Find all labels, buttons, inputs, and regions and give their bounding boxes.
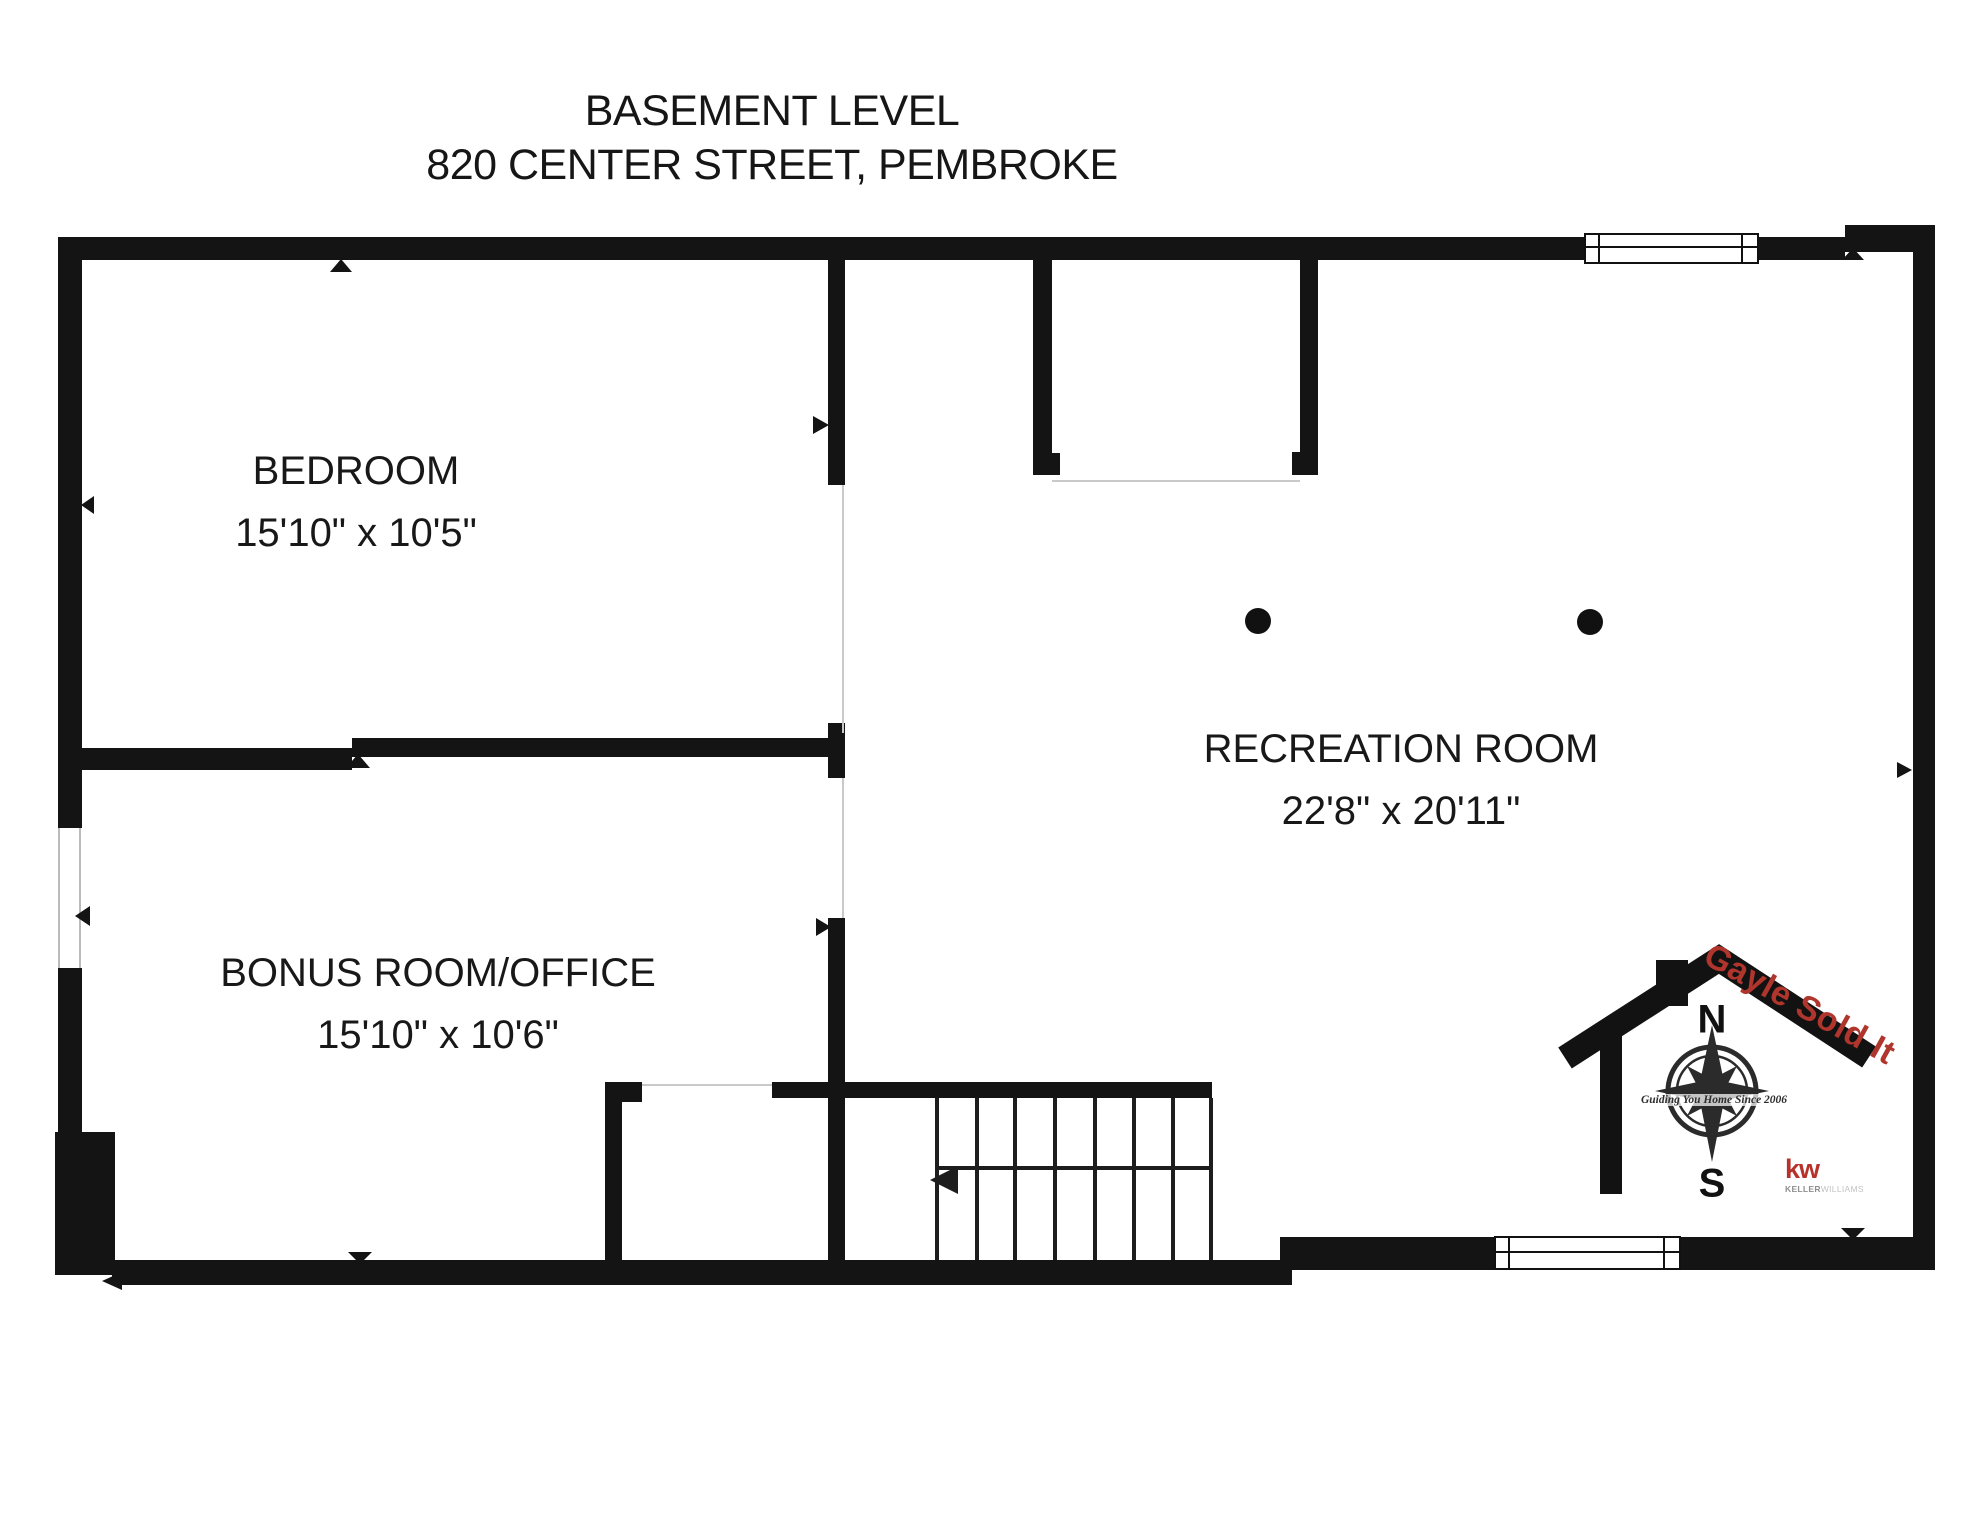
wall-top-right-block bbox=[1845, 225, 1935, 252]
wall-right bbox=[1913, 252, 1935, 1270]
room-dimensions: 15'10" x 10'5" bbox=[235, 502, 477, 564]
plan-title: BASEMENT LEVEL 820 CENTER STREET, PEMBRO… bbox=[272, 84, 1272, 192]
marker-arrow-icon bbox=[1897, 762, 1912, 778]
stair-riser bbox=[975, 1098, 979, 1260]
wall-divider-upper bbox=[828, 260, 845, 485]
room-name: RECREATION ROOM bbox=[1204, 718, 1599, 780]
floorplan-page: BASEMENT LEVEL 820 CENTER STREET, PEMBRO… bbox=[0, 0, 1987, 1536]
wall-bedroom-bonus-right bbox=[352, 738, 845, 757]
plan-title-line1: BASEMENT LEVEL bbox=[272, 84, 1272, 138]
compass-north-label: N bbox=[1698, 998, 1727, 1043]
wall-stairs-top bbox=[772, 1082, 1212, 1098]
opening-line-alcove bbox=[1052, 480, 1300, 482]
marker-arrow-icon bbox=[81, 496, 94, 514]
stair-riser bbox=[1053, 1098, 1057, 1260]
support-column bbox=[1245, 608, 1271, 634]
stair-riser bbox=[1209, 1098, 1213, 1260]
window-bottom bbox=[1495, 1237, 1680, 1269]
marker-arrow-icon bbox=[813, 416, 829, 434]
wall-bedroom-bonus-left bbox=[80, 748, 352, 770]
kw-logo-subtext-williams: WILLIAMS bbox=[1821, 1184, 1864, 1194]
stair-riser bbox=[1013, 1098, 1017, 1260]
support-column bbox=[1577, 609, 1603, 635]
room-dimensions: 15'10" x 10'6" bbox=[220, 1004, 656, 1066]
stair-direction-arrow-icon bbox=[930, 1166, 958, 1194]
stair-riser bbox=[1132, 1098, 1136, 1260]
stair-riser bbox=[1093, 1098, 1097, 1260]
window-left bbox=[58, 828, 81, 968]
opening-line-divider-upper bbox=[842, 485, 844, 733]
window-top bbox=[1585, 234, 1758, 263]
staircase bbox=[930, 1098, 1213, 1260]
wall-top bbox=[58, 237, 1845, 260]
wall-bottom-left bbox=[112, 1260, 1292, 1285]
wall-alcove-right bbox=[1300, 260, 1318, 475]
kw-logo-subtext-keller: KELLER bbox=[1785, 1184, 1821, 1194]
stair-riser bbox=[1171, 1098, 1175, 1260]
wall-left-lower bbox=[58, 968, 82, 1132]
opening-line-closet-door bbox=[642, 1084, 772, 1086]
wall-divider-lower bbox=[828, 918, 845, 1285]
logo-motto-text: Guiding You Home Since 2006 bbox=[1639, 1094, 1789, 1106]
marker-arrow-icon bbox=[75, 906, 90, 926]
room-label-recreation: RECREATION ROOM 22'8" x 20'11" bbox=[1204, 718, 1599, 842]
room-label-bonus-office: BONUS ROOM/OFFICE 15'10" x 10'6" bbox=[220, 942, 656, 1066]
room-dimensions: 22'8" x 20'11" bbox=[1204, 780, 1599, 842]
wall-alcove-left-foot bbox=[1033, 453, 1060, 475]
room-name: BEDROOM bbox=[235, 440, 477, 502]
plan-title-line2: 820 CENTER STREET, PEMBROKE bbox=[272, 138, 1272, 192]
wall-closet-top-stub bbox=[605, 1082, 642, 1102]
opening-line-divider-lower bbox=[842, 778, 844, 918]
kw-logo-subtext: KELLERWILLIAMS bbox=[1785, 1185, 1864, 1194]
wall-alcove-right-foot bbox=[1292, 452, 1318, 475]
wall-closet-left bbox=[605, 1082, 622, 1280]
wall-alcove-left bbox=[1033, 260, 1052, 475]
compass-south-label: S bbox=[1699, 1162, 1726, 1207]
wall-left-upper bbox=[58, 237, 82, 828]
opening-lines bbox=[642, 480, 1300, 1086]
floorplan-drawing bbox=[0, 0, 1987, 1536]
room-name: BONUS ROOM/OFFICE bbox=[220, 942, 656, 1004]
support-columns bbox=[1245, 608, 1603, 635]
kw-logo: kw KELLERWILLIAMS bbox=[1785, 1156, 1864, 1194]
wall-left-pier bbox=[55, 1132, 115, 1275]
kw-logo-mark: kw bbox=[1785, 1156, 1864, 1183]
logo-house-wall bbox=[1600, 1032, 1622, 1194]
marker-arrow-icon bbox=[330, 259, 352, 272]
room-label-bedroom: BEDROOM 15'10" x 10'5" bbox=[235, 440, 477, 564]
stair-direction-line bbox=[935, 1166, 1212, 1170]
